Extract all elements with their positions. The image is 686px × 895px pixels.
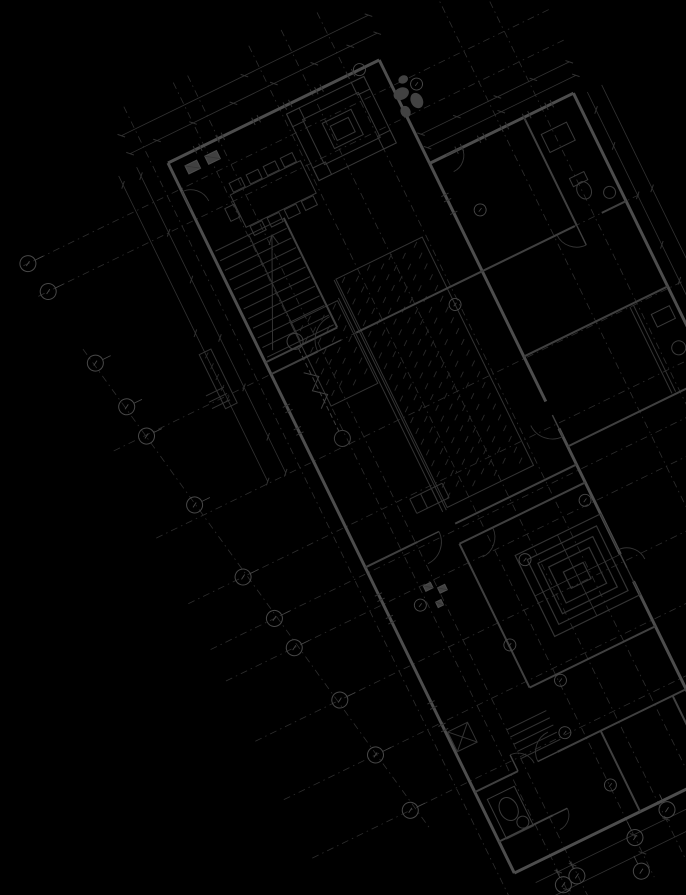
hatch-dash — [306, 316, 312, 322]
reference-tag-glyph — [418, 603, 422, 607]
hatch-dash — [449, 470, 455, 476]
hatch-dash — [407, 384, 413, 390]
hatch-dash — [434, 405, 440, 411]
hatch-dash — [459, 372, 465, 378]
fixture-ellipse — [669, 338, 686, 357]
door-swing-arc — [557, 225, 586, 254]
hatch-dash — [428, 274, 434, 280]
hatch-dash — [454, 361, 460, 367]
hatch-dash — [317, 338, 323, 344]
hatch-dash — [392, 265, 398, 271]
plant-blob — [408, 91, 426, 111]
hatch-dash — [480, 415, 486, 421]
hatch-dash — [406, 317, 412, 323]
door-leaf — [553, 808, 567, 815]
hatch-dash — [437, 382, 443, 388]
dimension-line — [137, 167, 286, 473]
hatch-dash — [423, 383, 429, 389]
hatch-dash — [430, 460, 436, 466]
grid-bubble-leader — [250, 570, 258, 574]
hatch-dash — [412, 275, 418, 281]
hatch-dash — [408, 351, 414, 357]
hatch-dash — [460, 459, 466, 465]
plan-group — [0, 0, 686, 895]
sofa-outline — [330, 117, 355, 140]
dimension-tick — [572, 72, 580, 80]
hatch-dash — [417, 285, 423, 291]
hatch-dash — [444, 459, 450, 465]
reference-tag-glyph — [478, 208, 482, 212]
hatch-dash — [475, 404, 481, 410]
partition-line — [365, 542, 417, 567]
hatch-dash — [382, 363, 388, 369]
wall-line — [633, 581, 686, 689]
hatch-dash — [428, 427, 434, 433]
hatch-dash — [347, 336, 353, 342]
hatch-dash — [403, 287, 409, 293]
door-swing-arc — [417, 532, 449, 564]
grid-bubble-leader — [134, 399, 142, 403]
dimension-line — [119, 176, 268, 482]
hatch-dash — [448, 350, 454, 356]
dimension-line — [544, 815, 686, 895]
partition-line — [265, 327, 337, 362]
door-leaf — [510, 755, 518, 771]
hatch-dash — [413, 362, 419, 368]
dimension-tick — [240, 384, 248, 392]
grid-leader-line — [83, 304, 431, 875]
hatch-dash — [490, 436, 496, 442]
partition-line — [558, 647, 686, 751]
door-swing-arc — [182, 183, 209, 210]
grid-bubble-leader — [55, 284, 63, 288]
dimension-tick — [346, 42, 354, 50]
dimension-tick — [565, 58, 573, 66]
partition-line — [524, 117, 577, 225]
hatch-dash — [453, 415, 459, 421]
dimension-tick — [241, 72, 249, 80]
hatch-dash — [346, 369, 352, 375]
stoop-step — [206, 387, 224, 396]
grid-bubble-leader — [103, 356, 111, 360]
hatch-dash — [391, 351, 397, 357]
hatch-dash — [351, 380, 357, 386]
partition-line — [271, 351, 318, 374]
hatch-dash — [390, 285, 396, 291]
dining-table — [230, 161, 316, 228]
dimension-tick — [610, 142, 618, 150]
dimension-tick — [311, 60, 319, 68]
partition-line — [459, 544, 529, 688]
dining-chair — [263, 161, 279, 176]
hatch-dash — [425, 450, 431, 456]
hatch-dash — [517, 458, 523, 464]
partition-line — [284, 218, 337, 328]
door-swing-arc — [553, 808, 574, 829]
hatch-dash — [361, 320, 367, 326]
hatch-dash — [402, 340, 408, 346]
grid-bubble-glyph — [407, 808, 413, 813]
door-leaf — [417, 532, 439, 543]
hatch-dash — [371, 276, 377, 282]
hatch-dash — [465, 470, 471, 476]
hatch-dash — [396, 362, 402, 368]
hatch-dash — [507, 436, 513, 442]
hatch-dash — [404, 406, 410, 412]
door-leaf — [538, 752, 558, 762]
hatch-dash — [469, 393, 475, 399]
nested-square-grid — [557, 535, 596, 616]
hatch-dash — [398, 396, 404, 402]
stair-arrow-head — [272, 234, 279, 245]
hatch-dash — [433, 285, 439, 291]
hatch-dash — [418, 373, 424, 379]
dining-chair — [225, 204, 240, 221]
dimension-tick — [137, 172, 145, 180]
wall-line — [168, 163, 514, 873]
door-swing-arc — [531, 415, 563, 447]
reference-tag-glyph — [453, 303, 457, 307]
hatch-dash — [466, 416, 472, 422]
hatch-dash — [377, 352, 383, 358]
thin-line — [634, 305, 676, 391]
hatch-dash — [424, 330, 430, 336]
hatch-dash — [438, 328, 444, 334]
hatch-dash — [449, 317, 455, 323]
partition-line — [356, 271, 482, 332]
hatch-dash — [309, 347, 315, 353]
hatch-dash — [486, 393, 492, 399]
hatch-dash — [393, 385, 399, 391]
hatch-dash — [496, 447, 502, 453]
fixture-rect — [569, 172, 587, 187]
dining-chair — [246, 169, 262, 184]
hatch-dash — [354, 276, 360, 282]
nested-square-grid — [535, 554, 620, 596]
grid-bubble-glyph — [240, 575, 246, 580]
dimension-tick — [630, 831, 638, 839]
dimension-tick — [230, 99, 238, 107]
grid-line — [281, 30, 686, 861]
door-swing-arc — [618, 541, 645, 568]
grid-bubble-glyph — [192, 503, 198, 508]
partition-line — [601, 731, 640, 812]
dimension-tick — [192, 329, 200, 337]
plant-blob — [391, 85, 411, 103]
hatch-dash — [444, 307, 450, 313]
hatch-dash — [492, 470, 498, 476]
grid-line — [255, 485, 686, 741]
hatch-dash — [445, 373, 451, 379]
hatch-dash — [427, 361, 433, 367]
stair-stringer — [249, 235, 301, 341]
hatch-dash — [327, 359, 333, 365]
hatch-dash — [406, 264, 412, 270]
hatch-dash — [512, 447, 518, 453]
louver-line — [507, 711, 547, 730]
dimension-tick — [189, 119, 197, 127]
hatch-dash — [460, 339, 466, 345]
dimension-tick — [639, 849, 647, 857]
hatch-dash — [448, 404, 454, 410]
reference-tag-glyph — [583, 499, 587, 503]
hatch-dash — [412, 394, 418, 400]
hatch-dash — [423, 416, 429, 422]
hatch-dash — [336, 347, 342, 353]
hatch-dash — [461, 405, 467, 411]
thin-line — [410, 499, 417, 513]
stair-arrow — [227, 235, 318, 350]
grid-line — [312, 602, 686, 858]
hatch-dash — [464, 436, 470, 442]
hatch-dash — [367, 331, 373, 337]
door-swing-arc — [510, 747, 534, 771]
grid-line — [38, 40, 564, 296]
hatch-dash — [454, 481, 460, 487]
hatch-dash — [474, 458, 480, 464]
hatch-dash — [443, 339, 449, 345]
grid-line — [461, 0, 686, 774]
hatch-dash — [325, 379, 331, 385]
hatch-dash — [458, 425, 464, 431]
thin-line — [421, 494, 428, 508]
hatch-dash — [422, 350, 428, 356]
hatch-dash — [387, 308, 393, 314]
hatch-dash — [402, 373, 408, 379]
hatch-dash — [352, 347, 358, 353]
hatch-dash — [381, 297, 387, 303]
hatch-dash — [356, 309, 362, 315]
hatch-dash — [423, 264, 429, 270]
hatch-dash — [471, 480, 477, 486]
section-line — [299, 349, 339, 432]
grid-line — [249, 46, 654, 877]
hatch-dash — [496, 414, 502, 420]
hatch-dash — [342, 325, 348, 331]
hatch-dash — [429, 340, 435, 346]
hatch-dash — [434, 351, 440, 357]
floor-plan — [0, 0, 686, 895]
hatch-dash — [419, 439, 425, 445]
dimension-tick — [497, 108, 505, 116]
hatch-dash — [450, 437, 456, 443]
grid-bubble-leader — [383, 747, 391, 751]
hatch-dash — [427, 307, 433, 313]
grid-bubble-glyph — [25, 261, 31, 266]
hatch-dash — [471, 427, 477, 433]
hatch-dash — [357, 358, 363, 364]
hatch-dash — [398, 276, 404, 282]
hatch-dash — [340, 277, 346, 283]
hatch-dash — [397, 329, 403, 335]
hatch-dash — [432, 371, 438, 377]
door-swing-arc — [528, 732, 557, 761]
hatch-dash — [376, 286, 382, 292]
door-leaf — [446, 148, 462, 156]
hatch-dash — [319, 368, 325, 374]
reference-tag-glyph — [608, 783, 612, 787]
partition-line — [602, 201, 626, 213]
hatch-dash — [372, 342, 378, 348]
hatch-dash — [469, 447, 475, 453]
hatch-dash — [485, 426, 491, 432]
dimension-tick — [365, 11, 373, 19]
grid-bubble-leader — [301, 640, 309, 644]
door-swing-arc — [473, 528, 502, 557]
reference-tag-glyph — [558, 679, 562, 683]
hatch-dash — [413, 308, 419, 314]
hatch-dash — [387, 254, 393, 260]
hatch-dash — [418, 253, 424, 259]
hatch-dash — [370, 308, 376, 314]
hatch-dash — [408, 297, 414, 303]
hatch-dash — [439, 296, 445, 302]
hatch-dash — [330, 336, 336, 342]
thin-line — [334, 280, 446, 510]
hatch-dash — [336, 315, 342, 321]
hatch-dash — [379, 264, 385, 270]
dimension-tick — [188, 276, 196, 284]
wall-line — [573, 93, 686, 457]
louver-line — [514, 725, 554, 744]
grid-line — [156, 282, 682, 538]
grid-line — [226, 425, 686, 681]
grid-bubble-glyph — [638, 869, 644, 874]
hatch-dash — [381, 330, 387, 336]
hatch-dash — [363, 368, 369, 374]
door-leaf — [182, 192, 191, 210]
grid-bubble-leader — [628, 822, 632, 830]
partition-line — [524, 286, 668, 356]
sofa-outline — [322, 109, 363, 148]
fixture-rect — [651, 306, 675, 327]
hatch-dash — [438, 448, 444, 454]
hatch-dash — [444, 427, 450, 433]
hatch-dash — [330, 390, 336, 396]
hatch-dash — [346, 288, 352, 294]
grid-bubble-leader — [634, 856, 638, 864]
hatch-dash — [487, 459, 493, 465]
section-bubble — [332, 428, 353, 449]
reference-tag-glyph — [414, 82, 418, 86]
plant-blob — [397, 74, 409, 86]
grid-bubble-glyph — [45, 289, 51, 294]
dining-chair — [284, 204, 300, 219]
hatch-dash — [435, 471, 441, 477]
fixture-rect — [541, 122, 575, 152]
dimension-tick — [530, 76, 538, 84]
hatch-dash — [419, 319, 425, 325]
dining-chair — [301, 196, 317, 211]
hatch-dash — [501, 458, 507, 464]
grid-bubble-glyph — [291, 645, 297, 650]
hatch-dash — [450, 384, 456, 390]
hatch-dash — [412, 242, 418, 248]
hatch-dash — [429, 394, 435, 400]
dimension-tick — [648, 185, 656, 193]
hatch-dash — [314, 358, 320, 364]
hatch-dash — [470, 361, 476, 367]
hatch-dash — [409, 417, 415, 423]
partition-line — [530, 626, 656, 687]
dimension-line — [421, 62, 569, 134]
hatch-dash — [392, 319, 398, 325]
grid-line — [211, 393, 686, 649]
wall-line — [430, 163, 546, 401]
hatch-dash — [385, 274, 391, 280]
hatch-dash — [388, 374, 394, 380]
dimension-tick — [453, 113, 461, 121]
dimension-tick — [373, 29, 381, 37]
dimension-tick — [118, 132, 126, 140]
hatch-dash — [366, 265, 372, 271]
grid-bubble-leader — [35, 256, 43, 260]
dimension-tick — [592, 106, 600, 114]
grid-bubble-leader — [282, 611, 290, 615]
dimension-tick — [126, 150, 134, 158]
hatch-dash — [477, 438, 483, 444]
hatch-dash — [502, 425, 508, 431]
thin-line — [630, 307, 672, 393]
hatch-dash — [365, 297, 371, 303]
hatch-dash — [481, 382, 487, 388]
hatch-dash — [433, 318, 439, 324]
sofa-seat — [313, 162, 332, 181]
door-leaf — [318, 340, 341, 351]
sofa-seat — [378, 130, 397, 149]
sofa-seat — [287, 108, 306, 127]
stoop-step — [209, 393, 227, 402]
hatch-dash — [433, 438, 439, 444]
hatch-dash — [482, 448, 488, 454]
door-leaf — [552, 415, 563, 437]
blueprint-viewport — [0, 0, 686, 895]
sofa-seat — [351, 76, 370, 95]
dimension-line — [130, 33, 377, 154]
hatch-dash — [454, 328, 460, 334]
grid-bubble-glyph — [664, 807, 670, 812]
dimension-tick — [494, 93, 502, 101]
hatch-dash — [331, 304, 337, 310]
grid-line — [23, 9, 549, 265]
dimension-tick — [153, 137, 161, 145]
dimension-tick — [264, 478, 272, 486]
partition-line — [455, 464, 576, 523]
dining-chair — [229, 178, 245, 193]
hatch-dash — [456, 394, 462, 400]
fixture-ellipse — [574, 179, 594, 201]
dimension-line — [536, 797, 686, 882]
fixture-circle — [602, 184, 618, 200]
hatch-dash — [341, 358, 347, 364]
hatch-dash — [479, 468, 485, 474]
hatch-dash — [440, 362, 446, 368]
hatch-dash — [351, 299, 357, 305]
grid-bubble-leader — [202, 497, 210, 501]
hatch-dash — [386, 341, 392, 347]
hatch-dash — [338, 381, 344, 387]
hatch-dash — [416, 339, 422, 345]
thin-line — [442, 483, 449, 497]
hatch-dash — [401, 253, 407, 259]
hatch-dash — [360, 287, 366, 293]
dining-chair — [280, 153, 296, 168]
partition-line — [475, 771, 518, 792]
grid-line — [284, 543, 686, 799]
partition-line — [482, 226, 575, 271]
dimension-tick — [264, 433, 272, 441]
hatch-dash — [475, 371, 481, 377]
